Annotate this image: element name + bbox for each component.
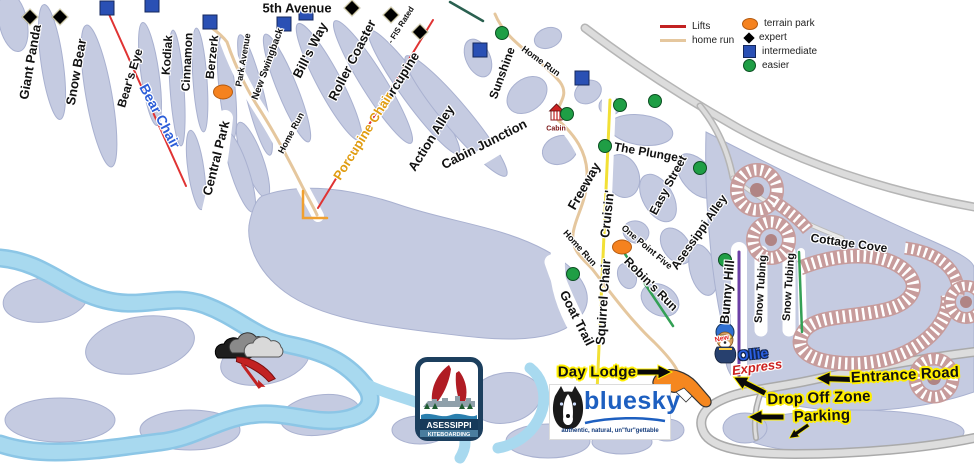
intermediate-marker xyxy=(100,1,115,16)
legend-label-expert: expert xyxy=(759,32,787,43)
easier-marker xyxy=(598,139,612,153)
easier-marker xyxy=(566,267,580,281)
easier-marker xyxy=(693,161,707,175)
legend-item-terrain-park: terrain park xyxy=(736,18,817,29)
label-kodiak: Kodiak xyxy=(159,35,176,76)
legend-item-home-run: home run xyxy=(660,35,734,46)
legend-swatch-expert xyxy=(743,32,754,43)
legend-item-lifts: Lifts xyxy=(660,21,734,32)
intermediate-marker xyxy=(575,71,590,86)
legend-swatch-intermediate xyxy=(743,45,756,58)
legend-label-intermediate: intermediate xyxy=(762,46,817,57)
legend-label-terrain-park: terrain park xyxy=(764,18,815,29)
label-fifth-avenue: 5th Avenue xyxy=(262,1,331,16)
kite-badge-line1: ASESSIPPI xyxy=(427,420,472,430)
label-parking: Parking xyxy=(794,407,851,426)
kiteboarding-badge: ASESSIPPI KITEBOARDING xyxy=(415,357,483,441)
legend-swatch-home-run xyxy=(660,39,686,42)
intermediate-marker xyxy=(145,0,160,13)
easier-marker xyxy=(495,26,509,40)
intermediate-marker xyxy=(473,43,488,58)
label-day-lodge: Day Lodge xyxy=(558,364,636,381)
bluesky-tagline: authentic, natural, un"fur"gettable xyxy=(552,428,668,434)
legend-swatch-easier xyxy=(743,59,756,72)
husky-icon xyxy=(551,386,585,430)
bluesky-swoosh xyxy=(583,417,667,425)
kite-badge-line2: KITEBOARDING xyxy=(428,432,470,438)
legend-label-lifts: Lifts xyxy=(692,21,710,32)
trail-map: Giant PandaSnow BearBear's EyeKodiakCinn… xyxy=(0,0,974,466)
easier-marker xyxy=(613,98,627,112)
label-drop-off-zone: Drop Off Zone xyxy=(767,388,871,409)
bluesky-name: bluesky xyxy=(584,387,681,416)
easier-marker xyxy=(560,107,574,121)
legend-swatch-terrain-park xyxy=(742,18,758,30)
rope-tow-line xyxy=(450,2,483,21)
legend-item-intermediate: intermediate xyxy=(736,46,817,57)
legend-column-right: terrain parkexpertintermediateeasier xyxy=(736,18,817,71)
label-cabin: Cabin xyxy=(546,126,565,133)
terrain-park-marker xyxy=(213,85,233,100)
legend-label-easier: easier xyxy=(762,60,789,71)
legend-label-home-run: home run xyxy=(692,35,734,46)
easier-marker xyxy=(648,94,662,108)
terrain-park-marker xyxy=(612,240,632,255)
kite-badge-graphic: ASESSIPPI KITEBOARDING xyxy=(415,357,483,441)
legend-item-expert: expert xyxy=(736,32,817,43)
intermediate-marker xyxy=(203,15,218,30)
legend-item-easier: easier xyxy=(736,60,817,71)
bluesky-logo: bluesky authentic, natural, un"fur"getta… xyxy=(549,384,671,440)
legend-column-left: Liftshome run xyxy=(660,21,734,46)
legend-swatch-lifts xyxy=(660,25,686,28)
